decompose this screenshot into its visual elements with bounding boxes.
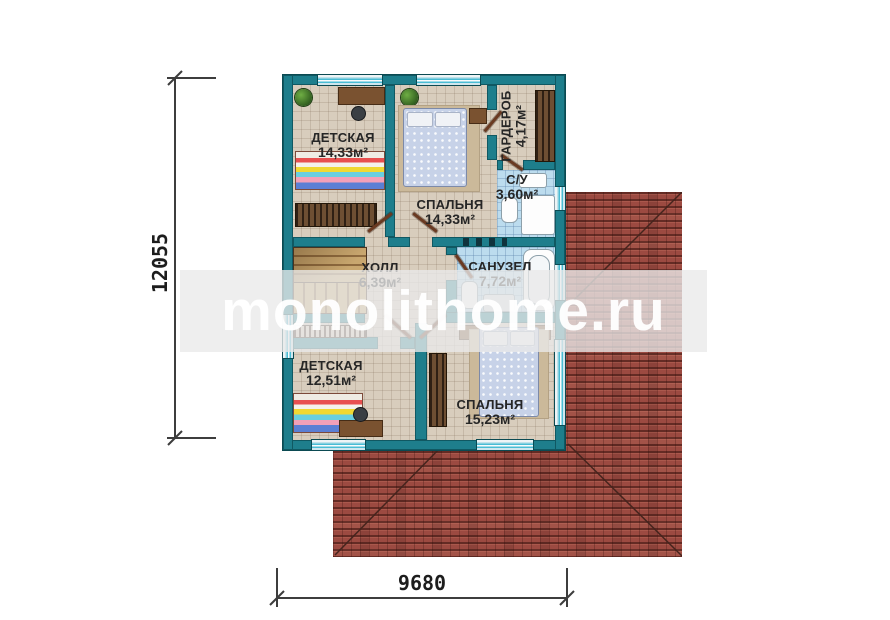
- room-name: ДЕТСКАЯ: [286, 359, 376, 373]
- room-label-wardrobe: ГАРДЕРОБ 4,17м²: [478, 93, 550, 159]
- chair-top-kids: [351, 106, 366, 121]
- window-bottom-bedroom: [477, 440, 533, 450]
- pillow: [435, 112, 461, 127]
- window-right-wc: [555, 187, 565, 210]
- room-label-kids-bottom: ДЕТСКАЯ 12,51м²: [286, 359, 376, 387]
- room-label-wc: С/У 3,60м²: [487, 173, 547, 201]
- exterior-wall-left: [283, 75, 293, 450]
- dimension-vertical-label: 12055: [130, 228, 190, 298]
- window-right-bedroom: [555, 340, 565, 425]
- room-name: ГАРДЕРОБ: [500, 90, 514, 161]
- room-label-kids-top: ДЕТСКАЯ 14,33м²: [298, 131, 388, 159]
- room-name: СПАЛЬНЯ: [445, 398, 535, 412]
- rotated-label: ГАРДЕРОБ 4,17м²: [500, 90, 528, 161]
- closet-top-kids: [295, 203, 377, 227]
- plant-icon: [401, 89, 418, 106]
- room-area: 14,33м²: [405, 212, 495, 227]
- room-area: 14,33м²: [298, 145, 388, 160]
- room-label-bedroom-bottom: СПАЛЬНЯ 15,23м²: [445, 398, 535, 426]
- pillow: [407, 112, 433, 127]
- dimension-horizontal-label: 9680: [382, 571, 462, 595]
- window-top-bedroom: [417, 75, 480, 85]
- chair-bottom-kids: [353, 407, 368, 422]
- room-area: 3,60м²: [487, 187, 547, 202]
- watermark-text: monolithome.ru: [221, 278, 666, 344]
- room-area: 15,23м²: [445, 412, 535, 427]
- window-top-kids: [318, 75, 382, 85]
- room-name: ДЕТСКАЯ: [298, 131, 388, 145]
- room-label-bedroom-top: СПАЛЬНЯ 14,33м²: [405, 198, 495, 226]
- plant-icon: [295, 89, 312, 106]
- window-bottom-kids: [312, 440, 365, 450]
- floor-plan: ДЕТСКАЯ 14,33м² СПАЛЬНЯ 14,33м² ГАРДЕРОБ…: [283, 75, 565, 450]
- wall-mid-a: [293, 237, 365, 247]
- desk-bottom-kids: [339, 420, 383, 437]
- room-area: 4,17м²: [513, 90, 528, 161]
- watermark-band: monolithome.ru: [180, 270, 707, 352]
- floor-plan-page: { "watermark": { "text": "monolithome.ru…: [0, 0, 890, 620]
- desk-top-kids: [338, 87, 385, 105]
- room-name: С/У: [487, 173, 547, 187]
- room-name: СПАЛЬНЯ: [405, 198, 495, 212]
- wall-mid-b: [388, 237, 410, 247]
- vent-blocks: [463, 238, 507, 246]
- room-area: 12,51м²: [286, 373, 376, 388]
